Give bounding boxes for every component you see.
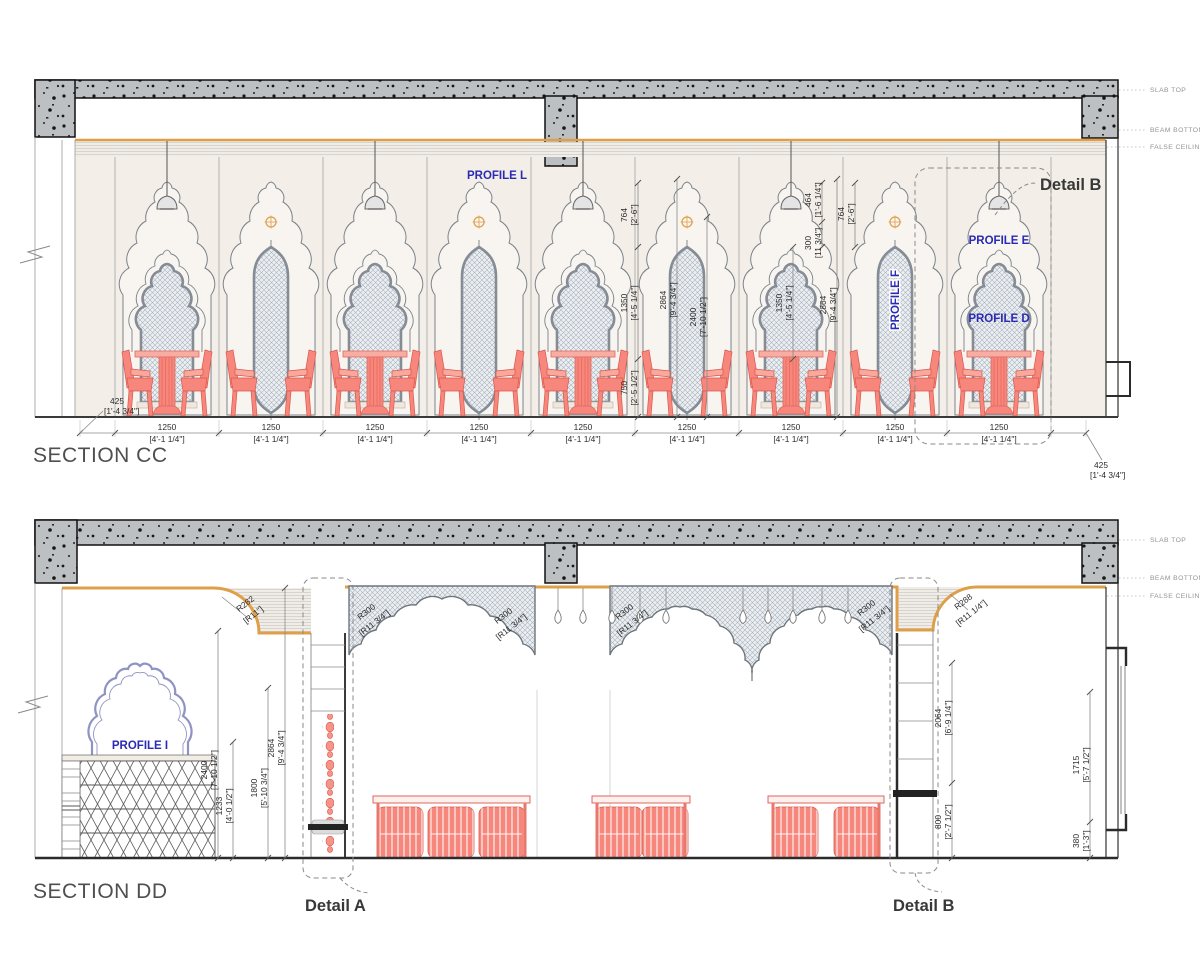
cc-dim-2864b-mm: 2864 bbox=[818, 295, 828, 314]
svg-text:1250: 1250 bbox=[990, 422, 1009, 432]
cc-dim-1350b-ft: [4'-5 1/4"] bbox=[784, 285, 794, 320]
dd-dim-2864-ft: [9'-4 3/4"] bbox=[276, 730, 286, 765]
svg-text:[4'-1 1/4"]: [4'-1 1/4"] bbox=[877, 434, 912, 444]
section-cc-drawing: 425 [1'-4 3/4"] 425 [1'-4 3/4"] 1250[4'-… bbox=[20, 80, 1200, 480]
cc-dim-464-ft: [1'-6 1/4"] bbox=[813, 182, 823, 217]
dd-break-symbol bbox=[18, 696, 48, 713]
dd-dim-1233-mm: 1233 bbox=[214, 796, 224, 815]
cc-dim-1350-ft: [4'-5 1/4"] bbox=[629, 285, 639, 320]
cc-dim-425-right-ft: [1'-4 3/4"] bbox=[1090, 470, 1125, 480]
dd-jali-screen bbox=[62, 755, 215, 858]
cc-side-label-false-ceiling: FALSE CEILING bbox=[1150, 144, 1200, 151]
cc-side-label-beam-bottom: BEAM BOTTOM bbox=[1150, 127, 1200, 134]
cc-dim-764b-mm: 764 bbox=[836, 207, 846, 221]
cc-dim-1350-mm: 1350 bbox=[619, 293, 629, 312]
dd-section-title: SECTION DD bbox=[33, 880, 168, 903]
svg-text:1250: 1250 bbox=[158, 422, 177, 432]
dd-side-label-false-ceiling: FALSE CEILING bbox=[1150, 593, 1200, 600]
svg-text:1250: 1250 bbox=[366, 422, 385, 432]
dd-dim-380-ft: [1'-3"] bbox=[1081, 830, 1091, 851]
svg-text:[4'-1 1/4"]: [4'-1 1/4"] bbox=[669, 434, 704, 444]
cc-label-profile-e: PROFILE E bbox=[969, 235, 1030, 247]
cc-dim-2400-ft: [7'-10 1/2"] bbox=[698, 297, 708, 337]
svg-text:1250: 1250 bbox=[886, 422, 905, 432]
cc-dim-2864-ft: [9'-4 3/4"] bbox=[668, 282, 678, 317]
cc-label-detail-b: Detail B bbox=[1040, 176, 1102, 194]
cc-section-title: SECTION CC bbox=[33, 444, 168, 467]
cc-right-wall bbox=[1106, 138, 1130, 417]
dd-side-label-beam-bottom: BEAM BOTTOM bbox=[1150, 575, 1200, 582]
cc-dim-464-mm: 464 bbox=[803, 193, 813, 207]
svg-text:[4'-1 1/4"]: [4'-1 1/4"] bbox=[773, 434, 808, 444]
dd-dim-800-ft: [2'-7 1/2"] bbox=[943, 804, 953, 839]
dd-left-wall bbox=[35, 583, 62, 858]
cc-dim-764-ft: [2'-6"] bbox=[629, 204, 639, 225]
cc-side-label-slab-top: SLAB TOP bbox=[1150, 87, 1186, 94]
dd-dim-2400-ft: [7'-10 1/2"] bbox=[209, 750, 219, 790]
cc-dim-750-mm: 750 bbox=[619, 381, 629, 395]
dd-side-label-slab-top: SLAB TOP bbox=[1150, 537, 1186, 544]
svg-text:1250: 1250 bbox=[470, 422, 489, 432]
cc-dim-2864b-ft: [9'-4 3/4"] bbox=[828, 287, 838, 322]
dd-dim-1715-ft: [5'-7 1/2"] bbox=[1081, 747, 1091, 782]
dd-detail-a-column bbox=[308, 633, 348, 858]
svg-text:1250: 1250 bbox=[262, 422, 281, 432]
dd-dim-800-mm: 800 bbox=[933, 815, 943, 829]
sections-svg: 425 [1'-4 3/4"] 425 [1'-4 3/4"] 1250[4'-… bbox=[0, 0, 1200, 953]
dd-dining-groups bbox=[373, 796, 884, 858]
cc-dim-2400-mm: 2400 bbox=[688, 307, 698, 326]
dd-detail-b-leader bbox=[915, 873, 942, 892]
svg-text:[4'-1 1/4"]: [4'-1 1/4"] bbox=[565, 434, 600, 444]
dd-dim-2064-mm: 2064 bbox=[933, 708, 943, 727]
svg-text:[4'-1 1/4"]: [4'-1 1/4"] bbox=[461, 434, 496, 444]
section-dd-drawing: PROFILE I bbox=[18, 520, 1200, 915]
cc-dim-425-left-ft: [1'-4 3/4"] bbox=[104, 406, 139, 416]
dd-dim-2064-ft: [6'-9 1/4"] bbox=[943, 700, 953, 735]
svg-text:1250: 1250 bbox=[782, 422, 801, 432]
cc-label-profile-l: PROFILE L bbox=[467, 170, 527, 182]
dd-label-detail-a: Detail A bbox=[305, 897, 366, 915]
dd-dim-1715-mm: 1715 bbox=[1071, 755, 1081, 774]
dd-dim-1800-mm: 1800 bbox=[249, 778, 259, 797]
cc-dim-300-ft: [11 3/4"] bbox=[813, 228, 823, 258]
cc-dim-300-mm: 300 bbox=[803, 236, 813, 250]
svg-text:1250: 1250 bbox=[678, 422, 697, 432]
cc-dim-2864-mm: 2864 bbox=[658, 290, 668, 309]
svg-text:[4'-1 1/4"]: [4'-1 1/4"] bbox=[149, 434, 184, 444]
dd-dim-1800-ft: [5'-10 3/4"] bbox=[259, 768, 269, 808]
dd-label-profile-i: PROFILE I bbox=[112, 740, 168, 752]
svg-text:[4'-1 1/4"]: [4'-1 1/4"] bbox=[253, 434, 288, 444]
cc-dim-764-mm: 764 bbox=[619, 208, 629, 222]
dd-dim-380-mm: 380 bbox=[1071, 834, 1081, 848]
cc-dim-425-right-mm: 425 bbox=[1094, 460, 1108, 470]
cc-label-profile-d: PROFILE D bbox=[968, 313, 1029, 325]
svg-text:1250: 1250 bbox=[574, 422, 593, 432]
dd-detail-a-leader bbox=[340, 878, 370, 893]
cc-dim-764b-ft: [2'-6"] bbox=[846, 203, 856, 224]
dd-dim-2400-mm: 2400 bbox=[199, 760, 209, 779]
dd-right-wall bbox=[1106, 583, 1126, 858]
cc-cove-band bbox=[75, 142, 1106, 157]
cc-label-profile-f: PROFILE F bbox=[890, 270, 902, 330]
svg-text:[4'-1 1/4"]: [4'-1 1/4"] bbox=[357, 434, 392, 444]
drawing-sheet: 425 [1'-4 3/4"] 425 [1'-4 3/4"] 1250[4'-… bbox=[0, 0, 1200, 953]
cc-dim-750-ft: [2'-5 1/2"] bbox=[629, 370, 639, 405]
cc-left-wall bbox=[35, 137, 75, 417]
dd-concrete-slab bbox=[35, 520, 1118, 583]
dd-dim-2864-mm: 2864 bbox=[266, 738, 276, 757]
svg-text:[4'-1 1/4"]: [4'-1 1/4"] bbox=[981, 434, 1016, 444]
dd-detail-b-column bbox=[893, 630, 937, 858]
dd-label-detail-b: Detail B bbox=[893, 897, 955, 915]
cc-dim-425-left-mm: 425 bbox=[110, 396, 124, 406]
cc-dim-1350b-mm: 1350 bbox=[774, 293, 784, 312]
dd-dim-1233-ft: [4'-0 1/2"] bbox=[224, 788, 234, 823]
